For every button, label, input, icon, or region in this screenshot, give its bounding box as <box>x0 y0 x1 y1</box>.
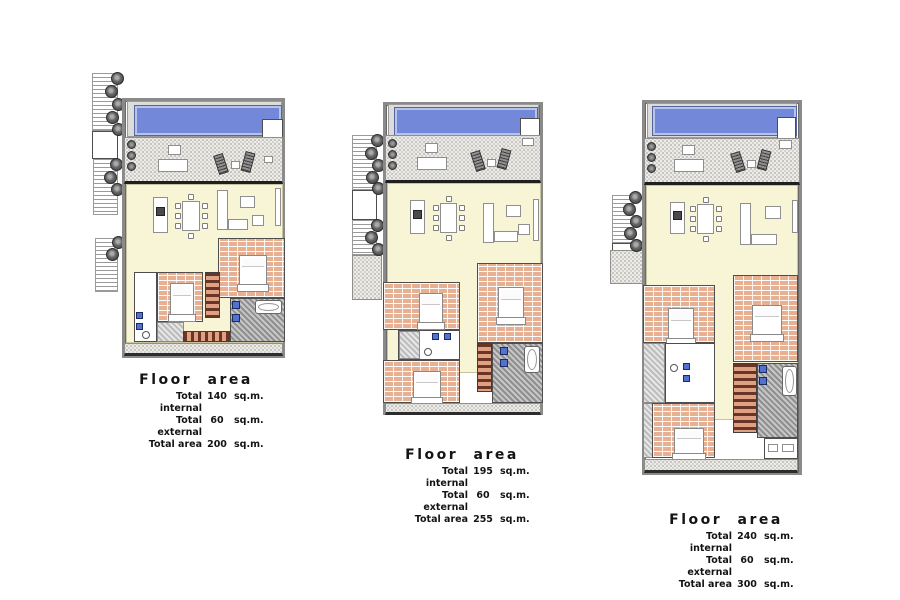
bed <box>752 305 782 339</box>
landing <box>92 131 118 159</box>
dining-chair <box>175 223 181 229</box>
planter <box>127 151 136 160</box>
dining-chair <box>690 226 696 232</box>
floor-area-title: Floor area <box>668 512 784 528</box>
sink <box>759 377 767 385</box>
row-value: 200 <box>202 439 232 451</box>
row-label: Total area <box>404 514 468 526</box>
bathtub <box>255 300 282 314</box>
floor-area-title: Floor area <box>404 447 520 463</box>
sink <box>232 301 240 309</box>
sofa <box>483 203 494 243</box>
row-label: Total external <box>404 490 468 514</box>
floor-area-row: Total area 200 sq.m. <box>138 439 254 451</box>
fixture <box>768 444 778 452</box>
row-unit: sq.m. <box>762 579 798 591</box>
sink <box>683 375 690 382</box>
planter <box>127 140 136 149</box>
dining-chair <box>459 205 465 211</box>
floor-area-row: Total external 60 sq.m. <box>138 415 254 439</box>
closet <box>205 272 220 318</box>
sink <box>444 333 451 340</box>
terrace <box>644 138 800 185</box>
side-table <box>747 160 756 168</box>
row-value: 195 <box>468 466 498 490</box>
sofa <box>740 203 751 245</box>
bed <box>413 371 441 402</box>
bed <box>668 308 694 343</box>
sink <box>683 363 690 370</box>
toilet <box>142 331 150 339</box>
tree <box>105 85 118 98</box>
floor-area-row: Total external 60 sq.m. <box>668 555 784 579</box>
floor-area-row: Total area 300 sq.m. <box>668 579 784 591</box>
wardrobe <box>275 188 281 226</box>
side-table <box>231 161 240 169</box>
tree <box>365 231 378 244</box>
patio-strip <box>644 459 798 473</box>
dining-chair <box>202 213 208 219</box>
sink <box>759 365 767 373</box>
floor-area-label: Floor area Total internal 140 sq.m. Tota… <box>138 372 254 451</box>
bed-headboard <box>496 317 526 325</box>
dining-chair <box>446 235 452 241</box>
bed-headboard <box>168 314 196 322</box>
coffee-table <box>252 215 264 226</box>
row-label: Total area <box>668 579 732 591</box>
bathroom-floor <box>157 322 184 342</box>
floor-area-label: Floor area Total internal 195 sq.m. Tota… <box>404 447 520 526</box>
planter <box>647 142 656 151</box>
bed <box>170 283 194 319</box>
sofa <box>228 219 248 230</box>
bathtub <box>782 366 797 396</box>
bed-headboard <box>417 322 445 330</box>
outdoor-sofa <box>417 157 447 170</box>
bathroom-floor <box>399 331 420 359</box>
closet <box>733 363 757 433</box>
swimming-pool <box>653 107 796 135</box>
bathtub <box>524 346 540 373</box>
sink <box>432 333 439 340</box>
floor-area-title: Floor area <box>138 372 254 388</box>
swimming-pool <box>395 108 537 135</box>
bed <box>419 293 443 327</box>
sink <box>500 359 508 367</box>
tree <box>365 147 378 160</box>
swimming-pool <box>135 106 281 135</box>
row-unit: sq.m. <box>498 514 534 526</box>
sofa <box>217 190 228 230</box>
dining-chair <box>716 216 722 222</box>
row-value: 240 <box>732 531 762 555</box>
toilet <box>424 348 432 356</box>
row-label: Total external <box>668 555 732 579</box>
dining-chair <box>433 215 439 221</box>
bathroom-floor <box>643 343 665 403</box>
dining-table <box>697 204 714 234</box>
sink <box>500 347 508 355</box>
row-unit: sq.m. <box>762 531 798 555</box>
dining-chair <box>690 206 696 212</box>
sofa <box>751 234 777 245</box>
armchair <box>240 196 255 208</box>
row-value: 140 <box>202 391 232 415</box>
row-unit: sq.m. <box>498 490 534 514</box>
outdoor-item <box>522 138 534 146</box>
sofa <box>494 231 518 242</box>
outdoor-table <box>168 145 181 155</box>
wardrobe <box>533 199 539 241</box>
row-label: Total area <box>138 439 202 451</box>
floor-area-row: Total external 60 sq.m. <box>404 490 520 514</box>
floor-area-row: Total area 255 sq.m. <box>404 514 520 526</box>
tree <box>106 248 119 261</box>
row-label: Total internal <box>138 391 202 415</box>
planter <box>388 161 397 170</box>
row-value: 60 <box>732 555 762 579</box>
tree <box>104 171 117 184</box>
dining-chair <box>433 225 439 231</box>
floor-area-row: Total internal 140 sq.m. <box>138 391 254 415</box>
planter <box>647 153 656 162</box>
floor-area-row: Total internal 195 sq.m. <box>404 466 520 490</box>
planter <box>647 164 656 173</box>
row-label: Total internal <box>404 466 468 490</box>
row-value: 60 <box>468 490 498 514</box>
dining-chair <box>188 194 194 200</box>
dining-chair <box>716 206 722 212</box>
floor-area-label: Floor area Total internal 240 sq.m. Tota… <box>668 512 784 591</box>
outdoor-sofa <box>158 159 188 172</box>
armchair <box>765 206 781 219</box>
outdoor-item <box>779 140 792 149</box>
bed <box>674 428 704 458</box>
wardrobe <box>792 200 798 233</box>
dining-chair <box>175 213 181 219</box>
sink <box>136 323 143 330</box>
row-unit: sq.m. <box>762 555 798 579</box>
row-unit: sq.m. <box>232 439 268 451</box>
dining-chair <box>175 203 181 209</box>
dining-chair <box>716 226 722 232</box>
landing <box>352 190 377 220</box>
cooktop <box>413 210 422 219</box>
row-value: 300 <box>732 579 762 591</box>
tree <box>111 72 124 85</box>
dining-table <box>440 203 457 233</box>
bed-headboard <box>237 284 269 292</box>
row-label: Total internal <box>668 531 732 555</box>
dining-chair <box>459 225 465 231</box>
garden-patch <box>610 250 644 284</box>
floor-area-row: Total internal 240 sq.m. <box>668 531 784 555</box>
floor-plans-page: Floor area Total internal 140 sq.m. Tota… <box>0 0 900 600</box>
patio-strip <box>124 343 283 356</box>
garden-patch <box>352 255 382 300</box>
floor-area-rows: Total internal 195 sq.m. Total external … <box>404 466 520 526</box>
closet <box>477 343 492 392</box>
bed <box>498 287 524 322</box>
sink <box>232 314 240 322</box>
sink <box>136 312 143 319</box>
dining-chair <box>703 197 709 203</box>
floor-area-rows: Total internal 140 sq.m. Total external … <box>138 391 254 451</box>
terrace <box>385 135 541 183</box>
planter <box>388 150 397 159</box>
dining-chair <box>433 205 439 211</box>
dining-chair <box>690 216 696 222</box>
bed-headboard <box>750 334 784 342</box>
armchair <box>506 205 521 217</box>
row-unit: sq.m. <box>498 466 534 490</box>
dining-chair <box>446 196 452 202</box>
tree <box>629 191 642 204</box>
side-table <box>487 159 496 167</box>
cooktop <box>673 211 682 220</box>
dining-chair <box>202 223 208 229</box>
row-value: 60 <box>202 415 232 439</box>
cooktop <box>156 207 165 216</box>
row-unit: sq.m. <box>232 415 268 439</box>
bed <box>239 255 267 289</box>
dining-chair <box>202 203 208 209</box>
dining-chair <box>703 236 709 242</box>
dining-chair <box>188 233 194 239</box>
coffee-table <box>518 224 530 235</box>
toilet <box>670 364 678 372</box>
planter <box>127 162 136 171</box>
outdoor-table <box>425 143 438 153</box>
patio-strip <box>385 403 541 415</box>
row-label: Total external <box>138 415 202 439</box>
planter <box>388 139 397 148</box>
dining-chair <box>459 215 465 221</box>
bathroom <box>665 343 715 403</box>
tree <box>623 203 636 216</box>
outdoor-sofa <box>674 159 704 172</box>
fixture <box>782 444 794 452</box>
row-unit: sq.m. <box>232 391 268 415</box>
closet <box>183 331 230 342</box>
floor-area-rows: Total internal 240 sq.m. Total external … <box>668 531 784 591</box>
outdoor-table <box>682 145 695 155</box>
outdoor-item <box>264 156 273 163</box>
terrace <box>124 137 283 184</box>
row-value: 255 <box>468 514 498 526</box>
dining-table <box>182 201 200 231</box>
